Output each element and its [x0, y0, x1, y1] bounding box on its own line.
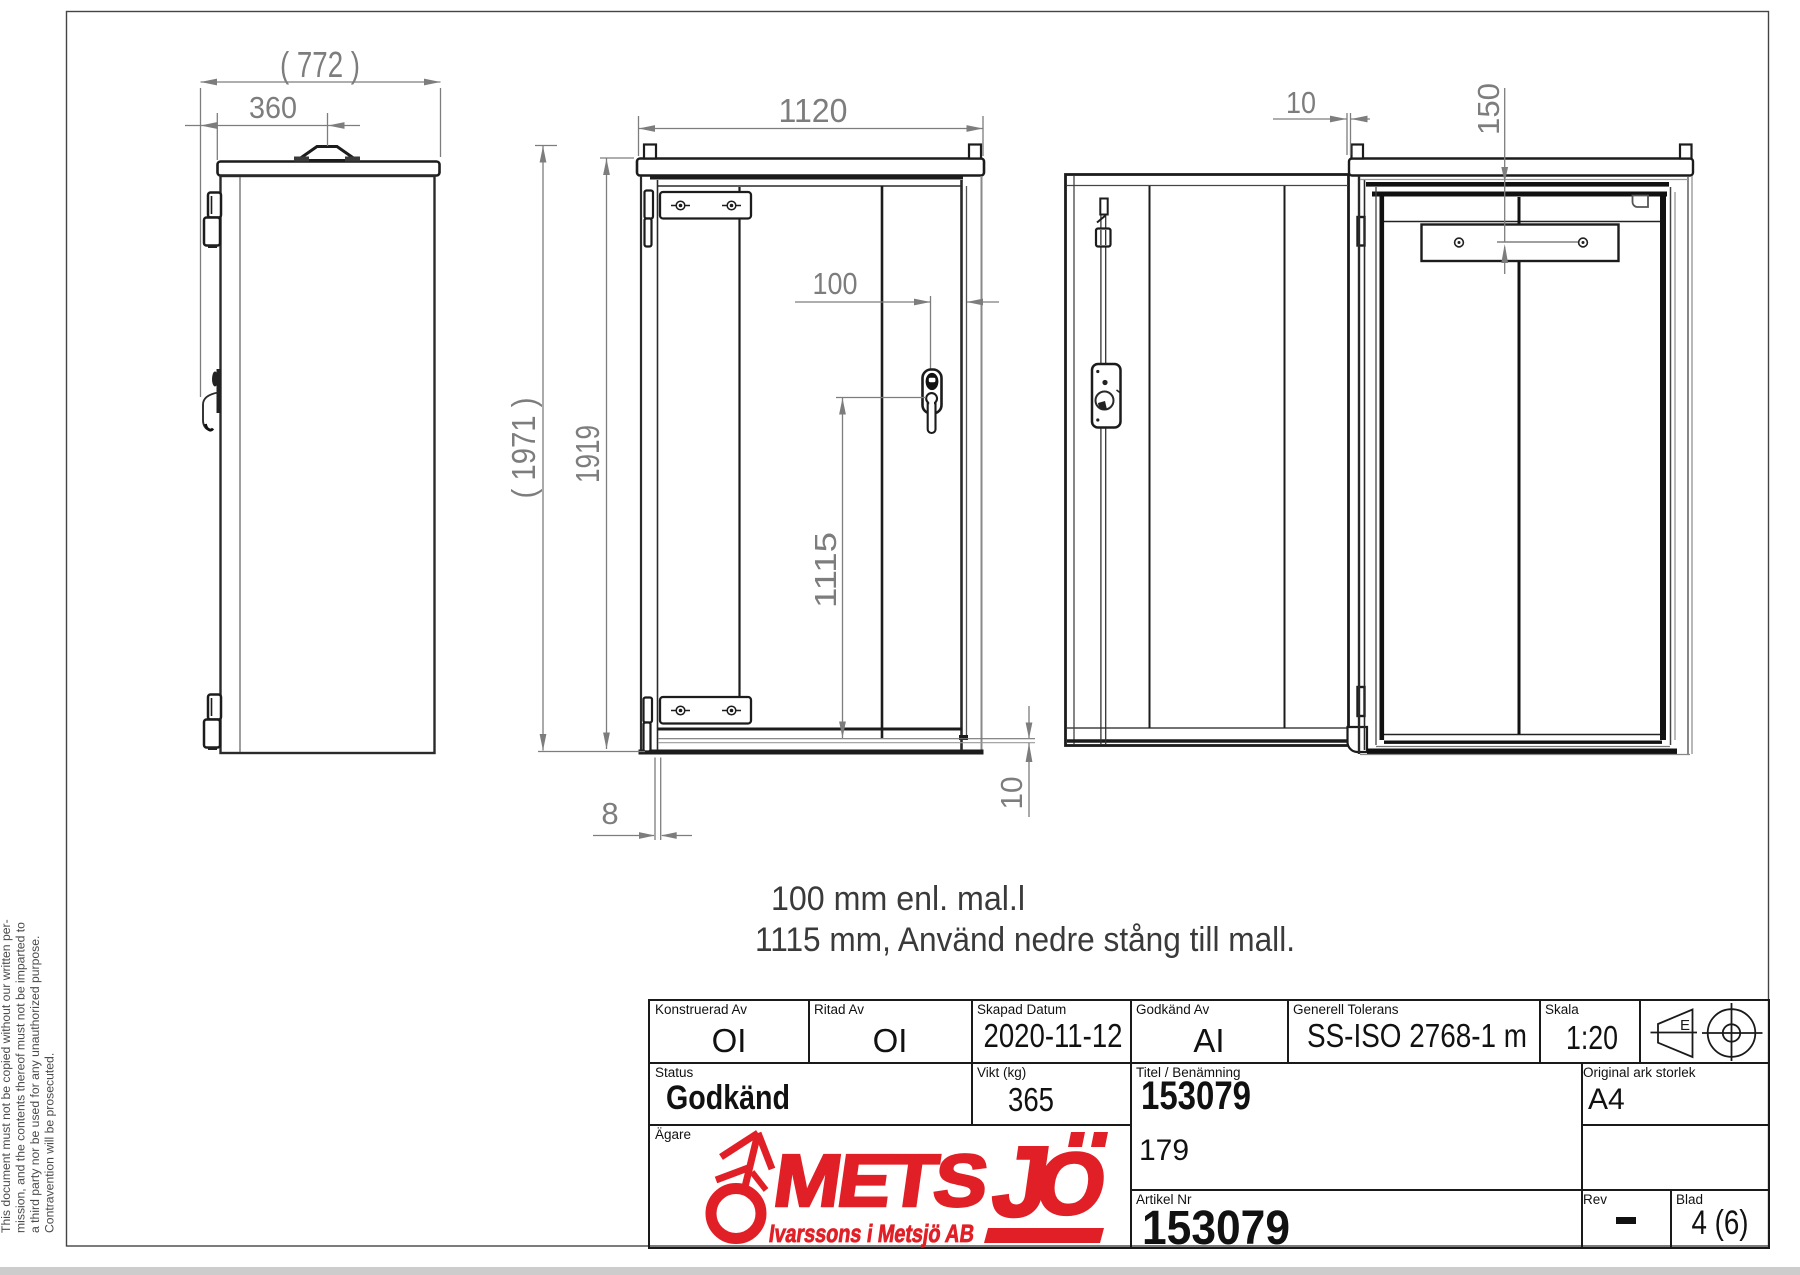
svg-text:E: E — [1680, 1017, 1690, 1034]
svg-text:Godkänd: Godkänd — [666, 1079, 790, 1117]
svg-text:Ritad Av: Ritad Av — [814, 1002, 864, 1017]
svg-text:1919: 1919 — [569, 425, 606, 483]
svg-text:8: 8 — [601, 796, 618, 831]
svg-text:Contravention will be prosecut: Contravention will be prosecuted. — [43, 1053, 57, 1233]
svg-text:A4: A4 — [1588, 1083, 1625, 1116]
svg-text:360: 360 — [249, 90, 297, 125]
svg-text:OI: OI — [712, 1022, 747, 1059]
svg-text:O: O — [1030, 1134, 1112, 1233]
svg-text:4 (6): 4 (6) — [1692, 1204, 1749, 1242]
svg-text:179: 179 — [1139, 1134, 1189, 1167]
svg-text:Skala: Skala — [1545, 1002, 1579, 1017]
svg-text:OI: OI — [873, 1022, 908, 1059]
svg-text:( 1971 ): ( 1971 ) — [505, 398, 542, 499]
svg-text:365: 365 — [1008, 1081, 1054, 1118]
svg-text:Vikt (kg): Vikt (kg) — [977, 1065, 1026, 1080]
svg-text:1115: 1115 — [808, 532, 843, 608]
svg-text:Skapad Datum: Skapad Datum — [977, 1002, 1066, 1017]
svg-text:SS-ISO 2768-1 m: SS-ISO 2768-1 m — [1307, 1017, 1527, 1054]
svg-text:a third party nor be used for: a third party nor be used for any unauth… — [28, 936, 42, 1233]
svg-text:Original ark storlek: Original ark storlek — [1583, 1065, 1696, 1080]
svg-text:Ägare: Ägare — [655, 1127, 691, 1142]
svg-text:( 772 ): ( 772 ) — [280, 44, 360, 85]
svg-text:150: 150 — [1471, 83, 1506, 135]
svg-text:100: 100 — [813, 266, 858, 301]
svg-text:Status: Status — [655, 1065, 694, 1080]
svg-text:153079: 153079 — [1141, 1074, 1251, 1118]
svg-text:Konstruerad Av: Konstruerad Av — [655, 1002, 747, 1017]
svg-text:2020-11-12: 2020-11-12 — [984, 1017, 1123, 1054]
svg-text:AI: AI — [1193, 1022, 1224, 1059]
svg-text:Rev: Rev — [1583, 1192, 1607, 1207]
svg-text:Ivarssons i Metsjö AB: Ivarssons i Metsjö AB — [767, 1220, 976, 1248]
svg-text:10: 10 — [1286, 85, 1316, 120]
svg-text:Godkänd Av: Godkänd Av — [1136, 1002, 1210, 1017]
svg-text:1:20: 1:20 — [1566, 1019, 1618, 1056]
svg-text:mission, and the contents ther: mission, and the contents thereof must n… — [14, 922, 28, 1233]
svg-text:1115 mm, Använd nedre stång ti: 1115 mm, Använd nedre stång till mall. — [755, 921, 1295, 959]
svg-text:153079: 153079 — [1142, 1202, 1290, 1255]
svg-text:Generell Tolerans: Generell Tolerans — [1293, 1002, 1399, 1017]
svg-text:METS: METS — [769, 1139, 991, 1222]
svg-text:This document must not be copi: This document must not be copied without… — [0, 919, 13, 1233]
svg-text:100 mm enl. mal.l: 100 mm enl. mal.l — [771, 880, 1025, 918]
svg-text:10: 10 — [994, 777, 1029, 810]
svg-text:1120: 1120 — [779, 92, 848, 129]
